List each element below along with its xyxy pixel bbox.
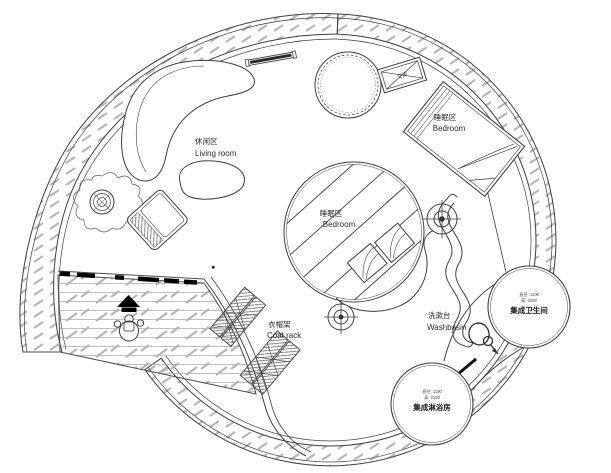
tv-panel [245,51,296,67]
armchair [125,188,189,251]
round-table [315,52,381,118]
shower-pod-height: 高: 2100 [424,394,441,401]
bathroom-pod-diameter: 直径: 1100 [519,291,539,297]
bathroom-pod: 直径: 1100 高: 2100 集成卫生间 [488,266,570,348]
bedroom-main-label-en: Bedroom [433,124,466,133]
shower-pod: 直径: 1100 高: 2100 集成淋浴房 [391,363,473,445]
light-marker-icon [324,300,358,334]
bedroom-main-label-zh: 睡眠区 [434,113,457,122]
coffee-table [179,161,244,199]
ac-unit-icon: 空调 [377,57,426,93]
washbasin-label-en: Washbasin [427,323,466,332]
bedroom-loft-label-zh: 睡眠区 [320,209,343,218]
coat-rack-label-en: Coat rack [267,331,302,340]
loft-bedroom-circle [264,144,444,320]
washbasin-label-zh: 洗漱台 [428,310,451,320]
coat-rack-label-zh: 衣帽架 [268,319,291,329]
shower-pod-diameter: 直径: 1100 [422,388,442,394]
floor-plan: 空调 睡眠区 Bedroom 睡眠区 Bedroom [0,0,611,473]
bedroom-loft-label-en: Bedroom [323,220,356,229]
living-room-label-zh: 休闲区 [195,136,218,146]
bathroom-pod-name: 集成卫生间 [509,305,548,315]
plan-dot-mark [212,266,215,269]
floor-plan-page: 空调 睡眠区 Bedroom 睡眠区 Bedroom [0,0,611,473]
light-marker-icon [423,200,461,238]
living-room-label-en: Living room [195,149,237,158]
shower-pod-name: 集成淋浴房 [412,402,451,412]
bathroom-pod-height: 高: 2100 [521,297,538,304]
